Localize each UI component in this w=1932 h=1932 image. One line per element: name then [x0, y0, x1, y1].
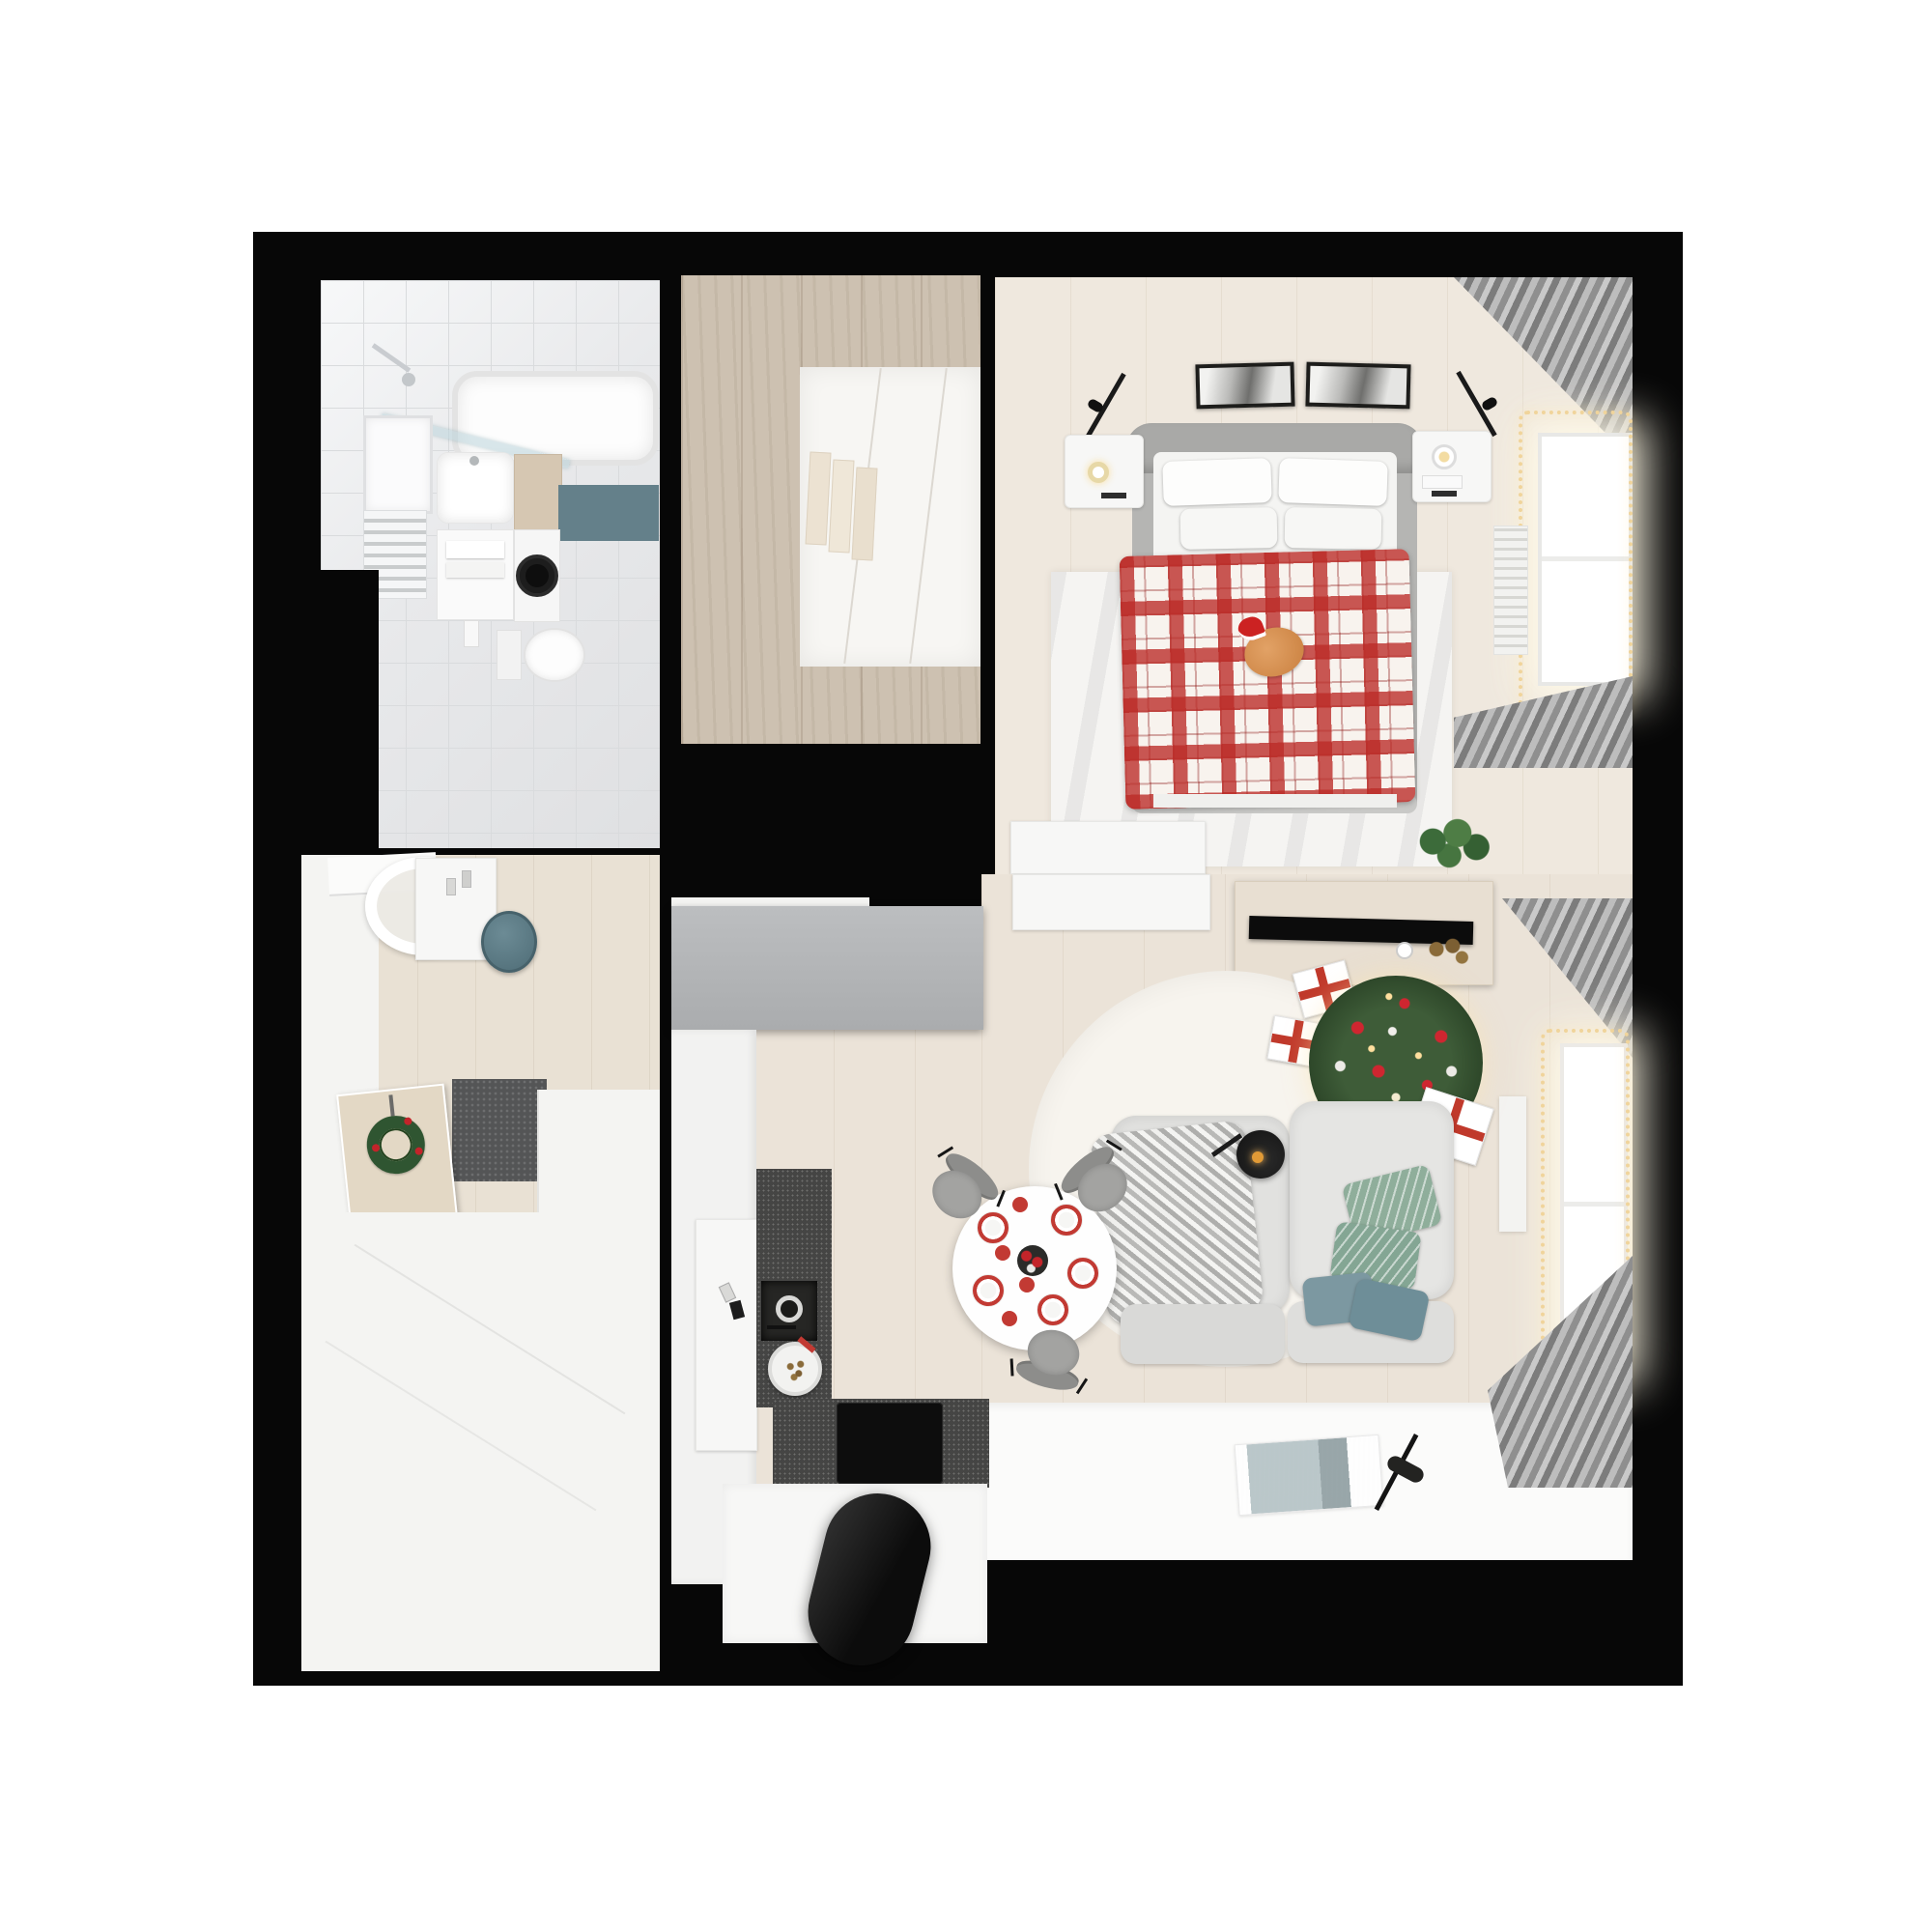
room-entrance-hall: [301, 855, 660, 1671]
red-napkin: [1019, 1277, 1035, 1293]
kitchen-cabinet: [696, 1219, 757, 1451]
centerpiece: [1017, 1245, 1048, 1276]
sink-basin: [776, 1295, 803, 1322]
wall-batten: [1499, 1096, 1526, 1232]
hall-wardrobe-top: [301, 1212, 660, 1671]
candle: [1088, 462, 1109, 483]
sink-recess: [761, 1281, 817, 1341]
art-print: [1235, 1435, 1384, 1516]
tv-bench: [1235, 881, 1493, 985]
wreath-hook: [388, 1094, 394, 1116]
bed-pillow: [1285, 507, 1382, 550]
book: [1422, 475, 1463, 489]
vase: [1396, 942, 1413, 959]
room-bathroom: [321, 280, 660, 848]
basin-faucet: [469, 456, 479, 466]
cup: [719, 1282, 736, 1302]
light-switch: [464, 620, 479, 647]
wall-sconce-right-head: [1481, 396, 1499, 412]
perfume-bottle: [462, 870, 471, 888]
perfume-bottle: [446, 878, 456, 895]
bathroom-mirror: [363, 415, 433, 514]
shower-rail: [372, 343, 412, 372]
plate: [972, 1274, 1005, 1307]
sofa-seat-cushion: [1121, 1304, 1285, 1364]
hanging-clothes: [829, 459, 855, 553]
potted-plant: [1412, 816, 1494, 872]
room-walk-in-closet: [681, 275, 980, 744]
bed-sheet-foot: [1153, 794, 1397, 808]
nightstand-handle: [1101, 493, 1126, 498]
dried-flowers: [1425, 936, 1471, 969]
washer-door: [516, 554, 558, 597]
plate: [1066, 1257, 1099, 1290]
bed-pillow: [1162, 458, 1272, 506]
sink-faucet: [767, 1325, 796, 1329]
christmas-wreath: [364, 1113, 428, 1177]
teal-bath-mat: [558, 485, 659, 541]
toilet-tank: [497, 630, 522, 680]
bedroom-radiator: [1493, 526, 1528, 655]
cabinet-seam: [326, 1341, 597, 1512]
red-napkin: [1002, 1311, 1017, 1326]
floor-lamp: [1236, 1130, 1285, 1179]
red-napkin: [995, 1245, 1010, 1261]
red-napkin: [1012, 1197, 1028, 1212]
wall-notch: [321, 570, 379, 848]
towel-stack: [446, 541, 504, 558]
teal-pouf: [481, 911, 537, 973]
hanging-clothes: [852, 467, 878, 560]
string-lights-bedroom: [1519, 411, 1633, 720]
cabinet-seam: [355, 1244, 626, 1415]
room-living-kitchen: [671, 874, 1633, 1584]
wall-art-frame: [1305, 362, 1410, 410]
hanging-clothes: [806, 451, 832, 545]
floor-plan-canvas: [0, 0, 1932, 1932]
towel-stack: [446, 562, 504, 578]
vanity-wood: [514, 454, 562, 531]
lamp-bulb: [1252, 1151, 1264, 1163]
cup: [729, 1300, 745, 1320]
bed-pillow: [1180, 507, 1278, 550]
bed-pillow: [1278, 458, 1388, 506]
closet-door-seam: [909, 368, 948, 664]
bedroom-dresser: [1010, 821, 1206, 874]
wreath-berry: [414, 1147, 423, 1155]
wall-art-frame: [1195, 362, 1294, 410]
cookie-plate: [768, 1342, 822, 1396]
white-sideboard: [1012, 874, 1210, 930]
shower-head-icon: [402, 373, 415, 386]
closet-interior: [800, 367, 980, 667]
room-bedroom: [995, 277, 1633, 874]
nightstand-handle: [1432, 491, 1457, 497]
wreath-berry: [372, 1144, 381, 1152]
toilet-bowl: [524, 628, 585, 682]
table-lamp: [1432, 444, 1457, 469]
gray-wardrobe: [671, 906, 983, 1030]
plaid-blanket: [1120, 549, 1416, 810]
wreath-berry: [404, 1117, 412, 1125]
induction-hob: [837, 1403, 943, 1484]
doormat: [452, 1079, 547, 1181]
